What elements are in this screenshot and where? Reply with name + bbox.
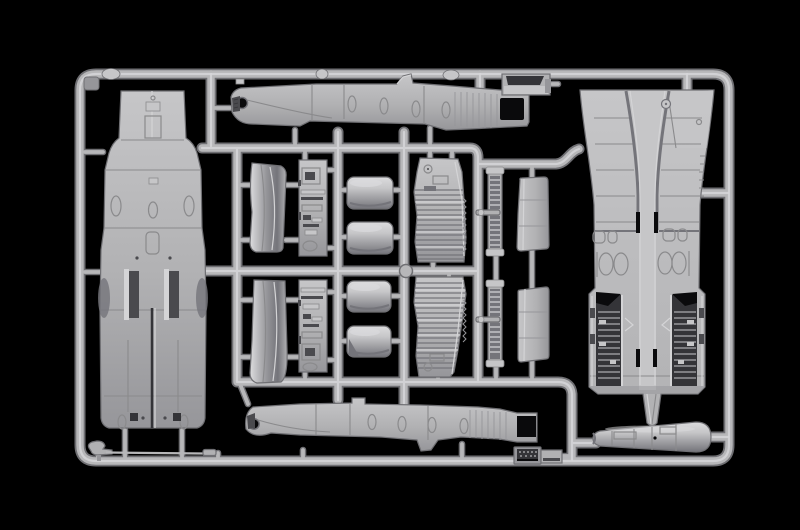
runner-lump <box>102 69 120 80</box>
engine-bay-right <box>671 292 697 386</box>
intake-duct <box>347 326 391 357</box>
part-cockpit-sidewall-lower <box>298 280 327 372</box>
tail-opening <box>517 416 536 437</box>
runner-lump <box>443 70 459 80</box>
part-intake-ramp-upper <box>250 163 286 252</box>
part-wing-root-wedge-lower <box>518 287 549 362</box>
runner-lump <box>316 69 328 79</box>
part-intake-box <box>502 74 551 95</box>
part-wing-root-wedge-upper <box>517 177 549 251</box>
part-wing-center-section <box>580 90 714 426</box>
engine-bay-left <box>596 292 622 386</box>
part-intake-ramp-lower <box>250 280 287 383</box>
sprue-photo <box>0 0 800 530</box>
intake-duct <box>347 281 391 312</box>
tail-opening <box>500 98 524 120</box>
part-corrugated-flap-upper <box>413 158 468 262</box>
intake-duct <box>347 177 393 209</box>
canopy-frame <box>232 96 240 112</box>
part-cockpit-sidewall-upper <box>298 160 327 256</box>
intake-duct <box>347 222 393 254</box>
sprue-sheet-svg <box>0 0 800 530</box>
corner-pad <box>84 77 99 90</box>
runner-junction <box>400 265 413 278</box>
part-instrument-panel <box>514 447 562 464</box>
